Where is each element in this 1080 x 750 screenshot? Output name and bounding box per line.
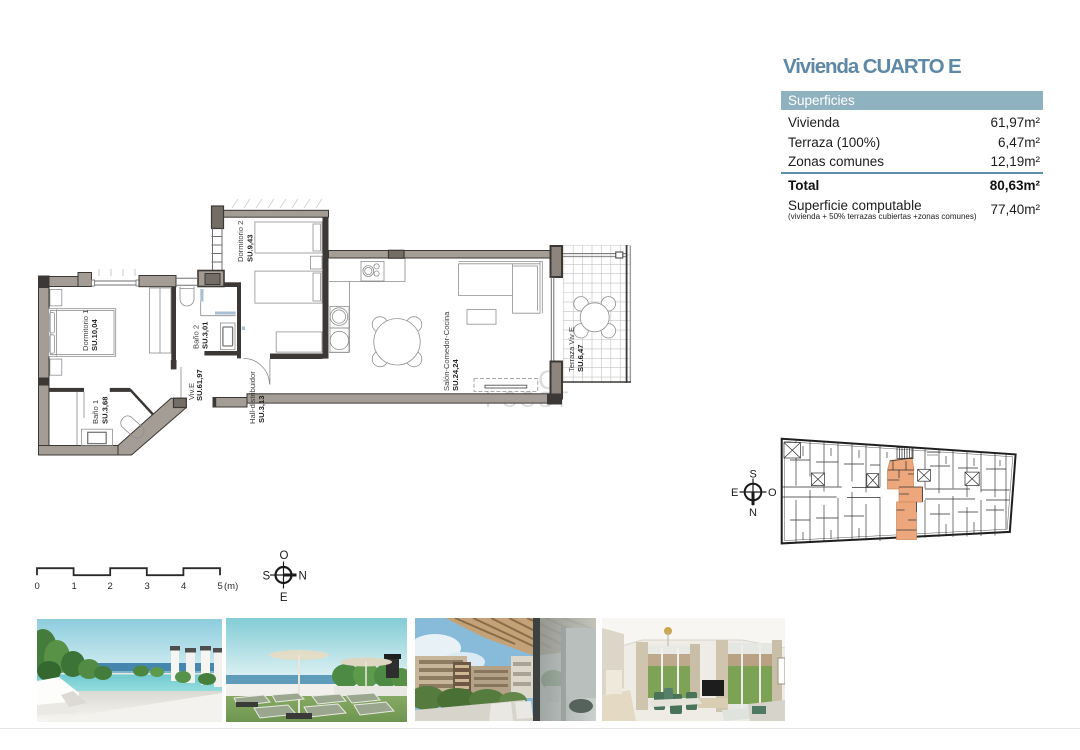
svg-text:SU.61,97: SU.61,97 <box>195 369 204 401</box>
svg-text:S: S <box>750 469 757 481</box>
svg-text:SU.9,43: SU.9,43 <box>246 235 255 262</box>
svg-text:0: 0 <box>35 581 40 592</box>
svg-text:O: O <box>768 487 777 499</box>
svg-text:N: N <box>749 507 757 519</box>
svg-text:Baño 2: Baño 2 <box>192 325 201 349</box>
svg-text:Baño 1: Baño 1 <box>91 400 100 424</box>
svg-text:SU.10,04: SU.10,04 <box>90 319 99 351</box>
svg-text:S: S <box>263 571 271 583</box>
svg-text:Hall-distribuidor: Hall-distribuidor <box>248 371 257 424</box>
svg-text:SU.6,47: SU.6,47 <box>576 345 585 372</box>
svg-text:SU.3,68: SU.3,68 <box>101 397 110 424</box>
svg-text:E: E <box>731 487 738 499</box>
svg-text:SU.3,01: SU.3,01 <box>201 321 210 349</box>
svg-text:O: O <box>280 550 289 562</box>
svg-text:E: E <box>280 592 288 604</box>
svg-text:5: 5 <box>218 581 223 592</box>
svg-text:Salón-Comedor-Cocina: Salón-Comedor-Cocina <box>442 311 451 391</box>
svg-text:3: 3 <box>145 581 150 592</box>
svg-text:Dormitorio 1: Dormitorio 1 <box>81 310 90 351</box>
svg-text:1: 1 <box>72 581 77 592</box>
svg-text:Dormitorio 2: Dormitorio 2 <box>236 221 245 262</box>
svg-text:Terraza Viv E: Terraza Viv E <box>567 327 576 372</box>
svg-text:4: 4 <box>181 581 186 592</box>
svg-text:2: 2 <box>108 581 113 592</box>
svg-text:SU.3,13: SU.3,13 <box>257 396 266 423</box>
svg-text:SU.24,24: SU.24,24 <box>451 359 460 391</box>
svg-text:(m): (m) <box>224 581 238 592</box>
svg-text:N: N <box>299 571 307 583</box>
